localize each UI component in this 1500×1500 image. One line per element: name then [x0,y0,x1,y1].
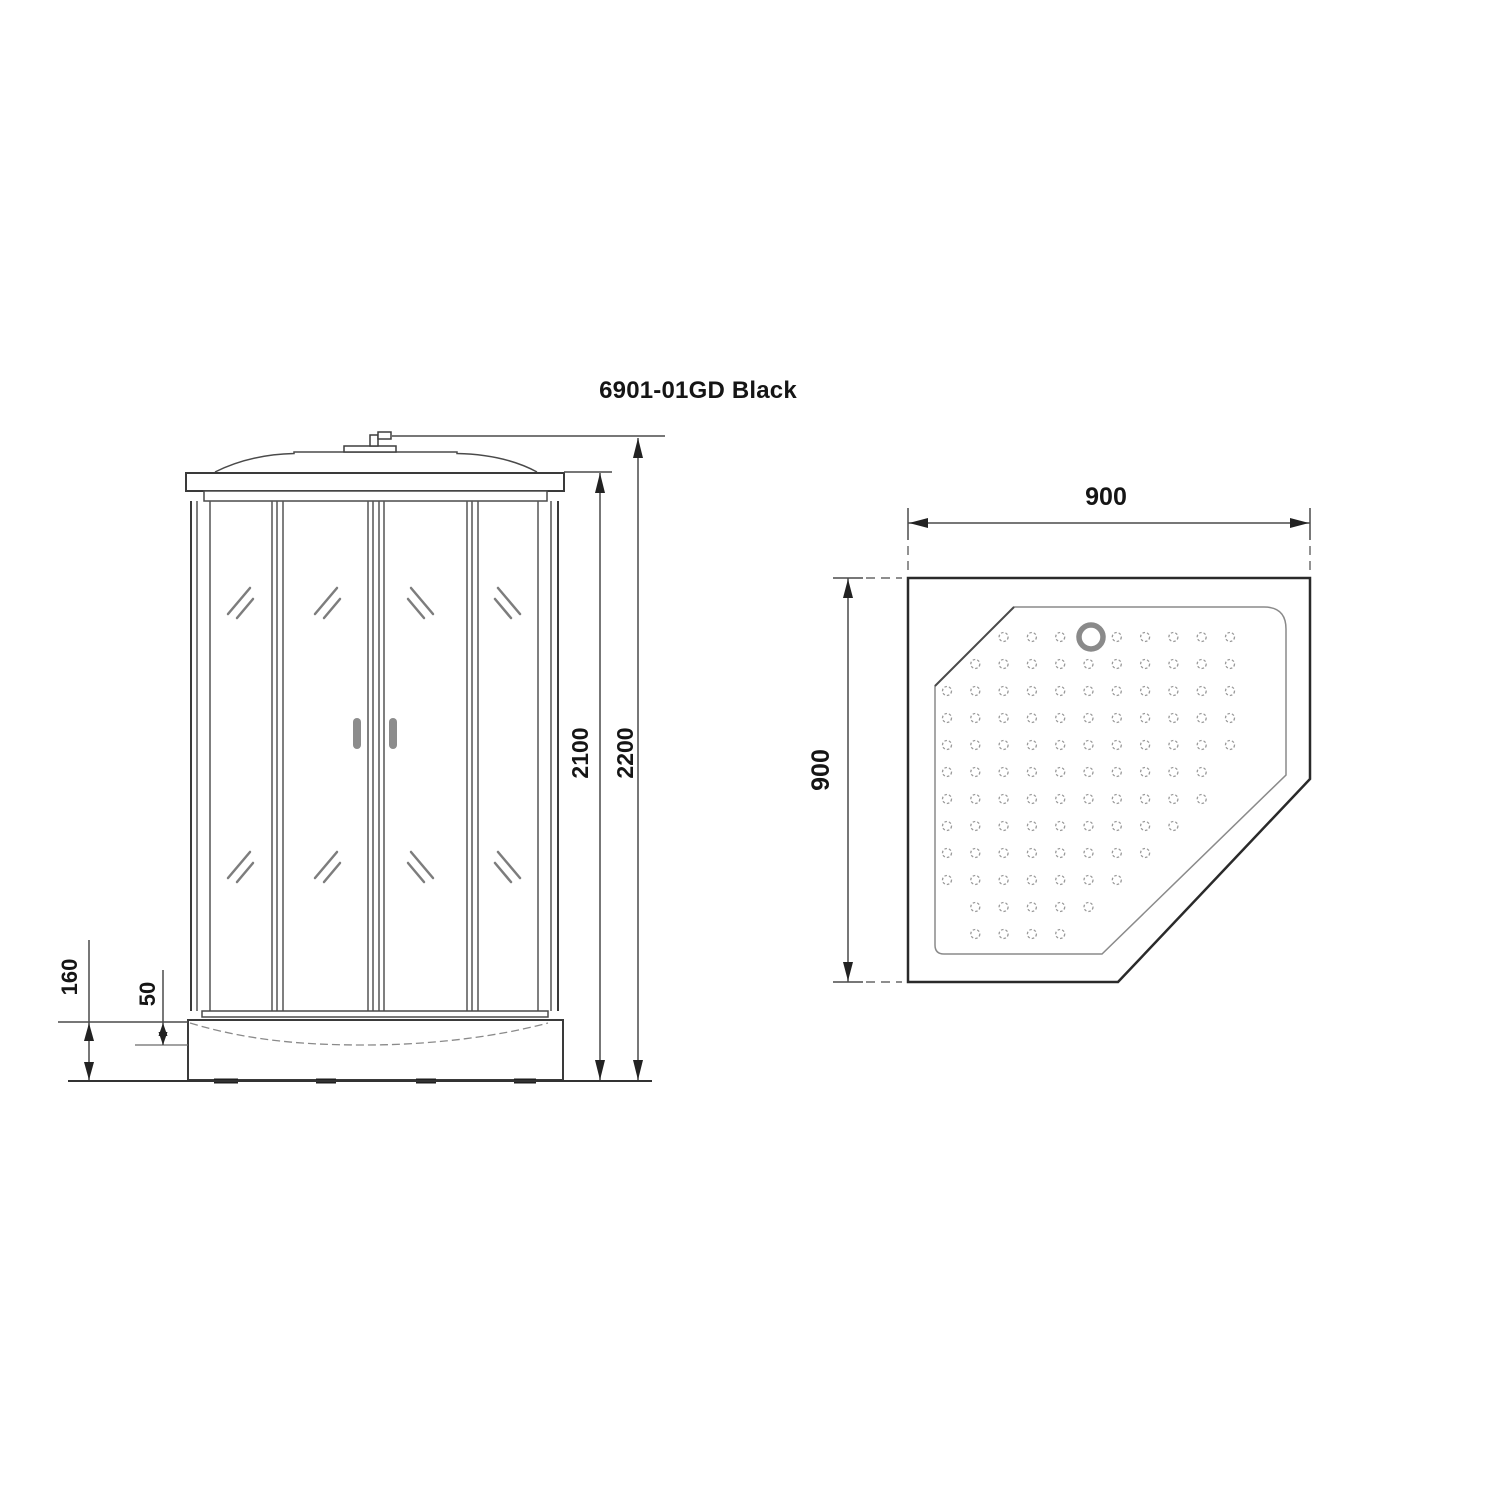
dim-label-plan-depth: 900 [808,735,836,805]
plan-view-drawing [908,578,1310,982]
dim-line-2100 [595,473,605,1080]
dim-label-total-height: 2200 [613,721,639,785]
tray-outer-outline [908,578,1310,982]
drawing-linework [0,0,1500,1500]
dim-label-tray-lip-height: 50 [136,974,160,1014]
roof-dome [215,452,537,472]
dim-label-base-height: 160 [58,949,82,1005]
model-title: 6901-01GD Black [598,378,798,403]
dim-label-plan-width: 900 [1071,484,1141,512]
glass-panel-frames [191,501,558,1011]
roof-fixture [344,432,396,452]
drain-ring [1079,625,1103,649]
top-frame-lip [204,491,547,501]
tray-base [188,1020,563,1080]
dim-line-900-width [908,508,1310,573]
top-frame-bar [186,473,564,491]
dim-line-160 [84,940,94,1080]
bottom-sill [202,1011,548,1017]
front-view-drawing [186,432,564,1081]
dim-label-cabin-height: 2100 [568,721,594,785]
dim-line-900-depth [833,578,902,982]
door-handles [353,718,397,749]
technical-drawing-canvas: 6901-01GD Black 2200 2100 160 50 900 900 [0,0,1500,1500]
